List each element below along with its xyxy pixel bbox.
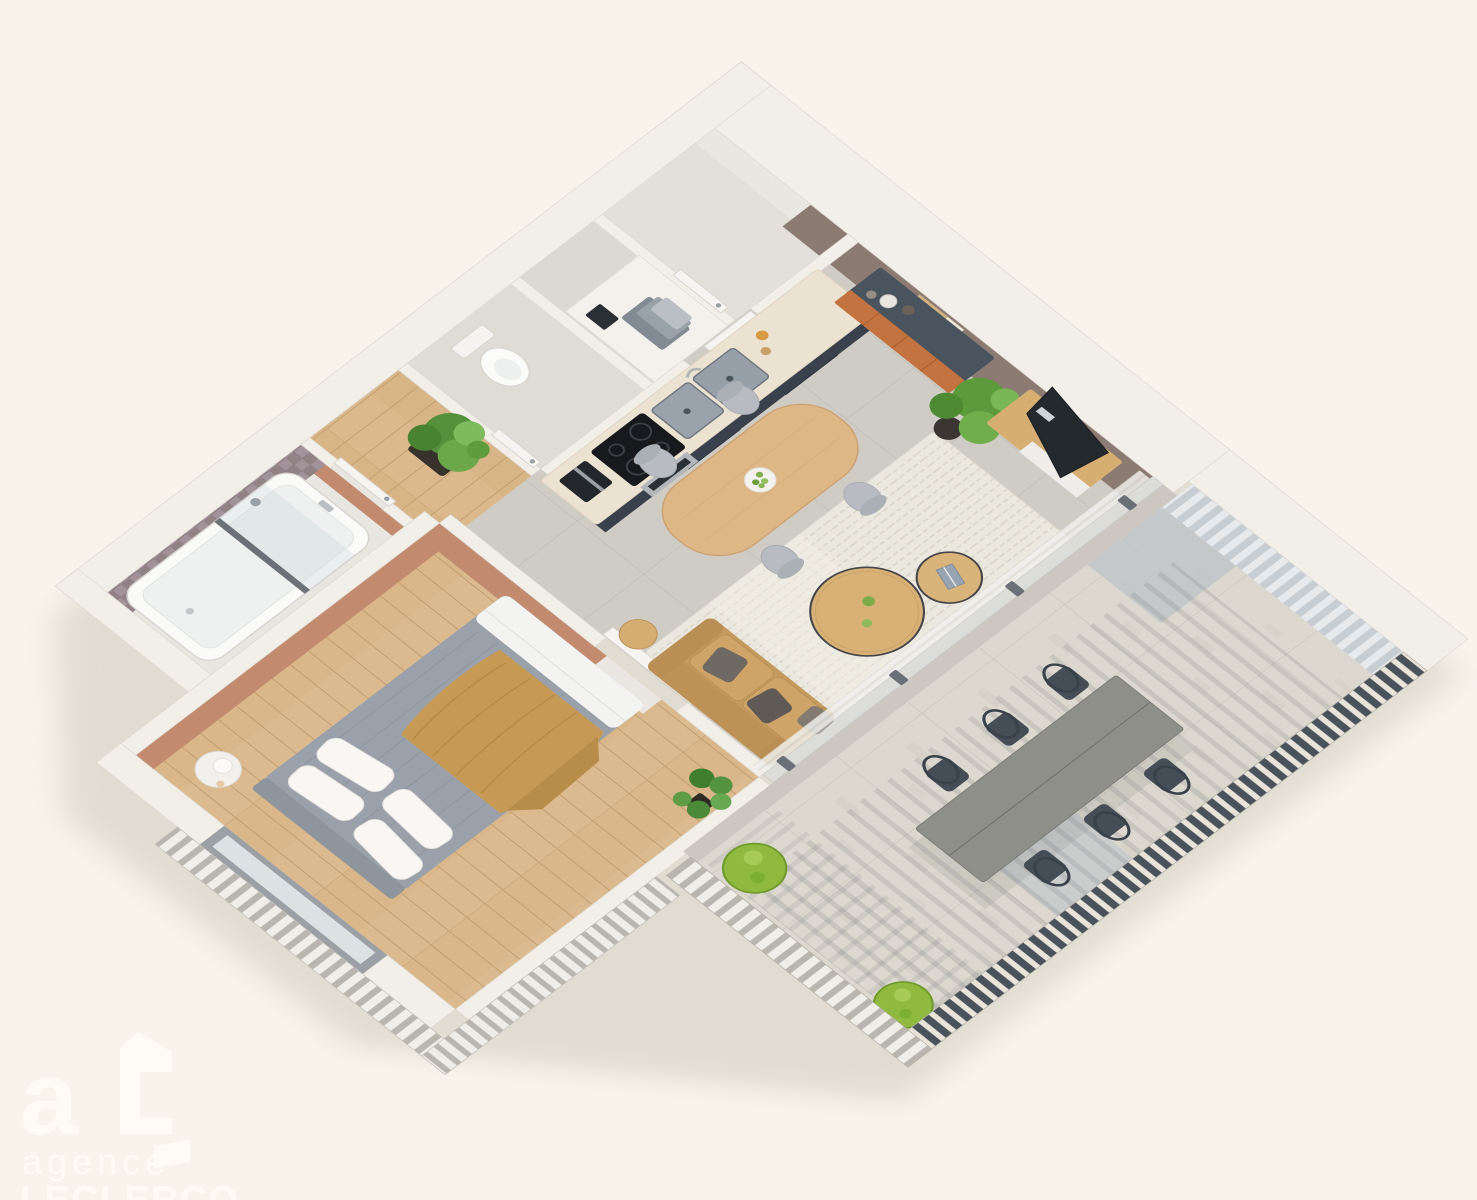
watermark-line2: LECLERCQ [20,1179,240,1200]
floor-plan-render: a agence LECLERCQ [0,0,1477,1200]
svg-text:a: a [20,1041,79,1157]
floor-plan-canvas: a agence LECLERCQ [0,0,1477,1200]
watermark-line1: agence [22,1141,170,1182]
